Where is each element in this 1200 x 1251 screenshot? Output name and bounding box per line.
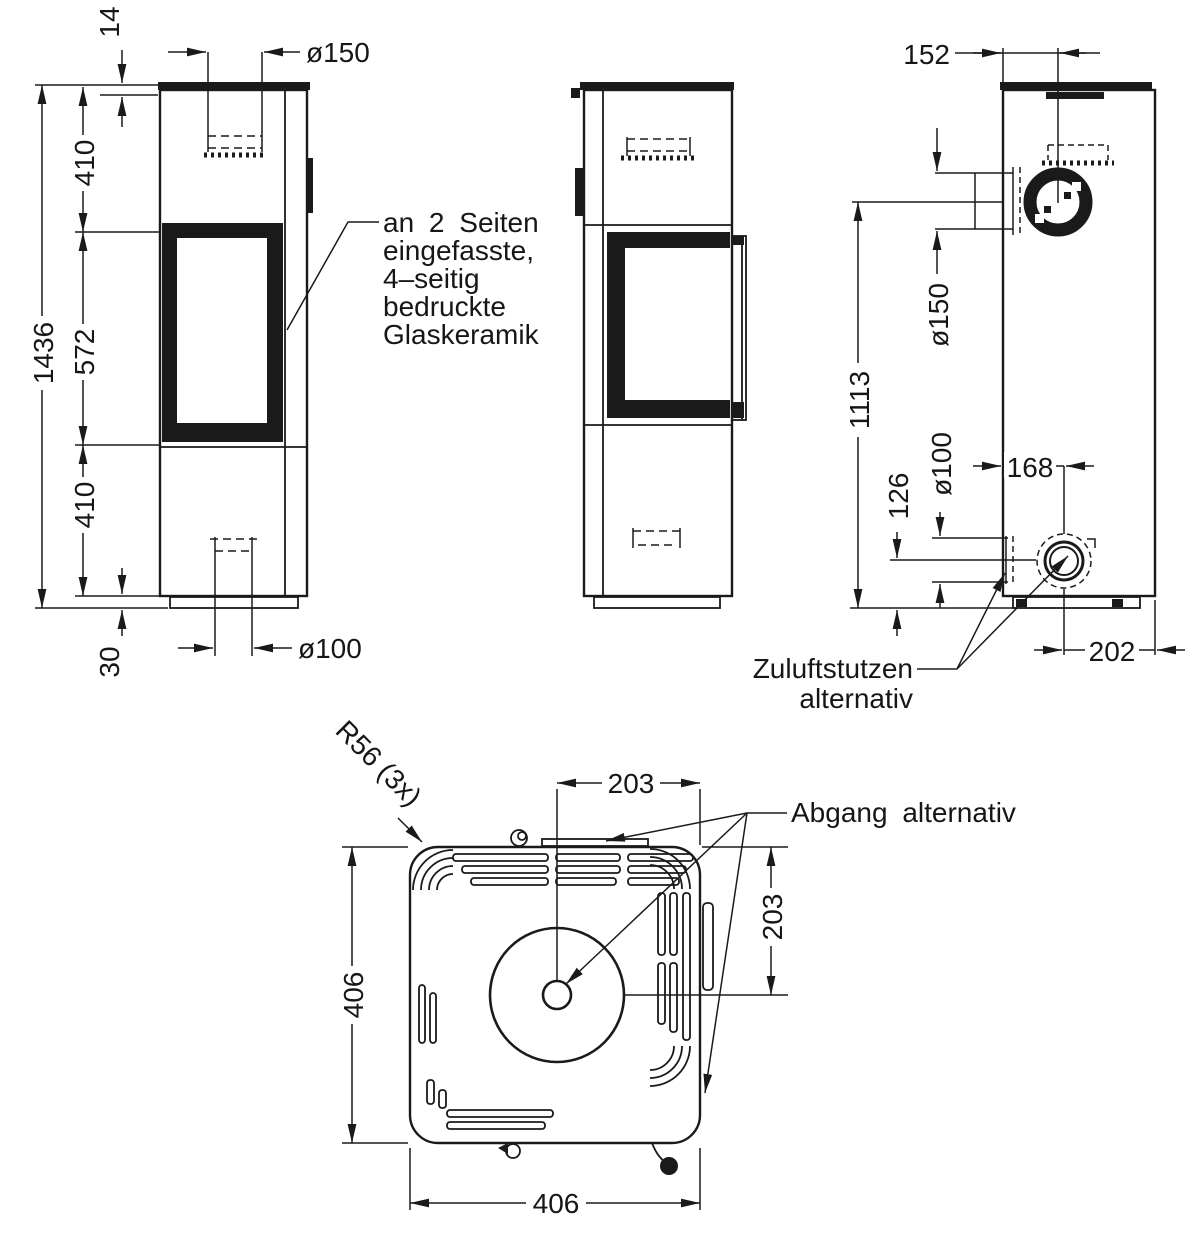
dim-top-plate: 14	[94, 6, 125, 127]
dim-half-depth-right-label: 203	[757, 894, 788, 941]
dim-upper-section: 410	[69, 87, 100, 232]
dim-half-depth-right: 203	[624, 847, 788, 995]
dim-plinth-height-label: 30	[94, 646, 125, 677]
dim-top-plate-label: 14	[94, 6, 125, 37]
outlet-note: Abgang alternativ	[566, 797, 1016, 1093]
air-inlet-note-line1: Zuluftstutzen	[753, 653, 913, 684]
rear-air-socket	[1006, 534, 1095, 588]
glass-note-line5: Glaskeramik	[383, 319, 540, 350]
front-door-lever	[306, 158, 313, 213]
side-glass-door	[607, 232, 730, 418]
side-door-lever	[575, 168, 584, 216]
top-rear-outlet-strip	[542, 839, 648, 846]
dim-air-socket-offset: 168	[973, 452, 1094, 534]
dim-glass-section: 572	[69, 232, 100, 445]
dim-half-width-top-label: 203	[608, 768, 655, 799]
dim-air-socket-offset-label: 168	[1007, 452, 1054, 483]
stove-dimension-drawing: 14 ø150 1436 410	[0, 0, 1200, 1251]
air-inlet-note: Zuluftstutzen alternativ	[753, 556, 1068, 714]
dim-width-bottom-label: 406	[533, 1188, 580, 1219]
glass-note: an 2 Seiten eingefasste, 4–seitig bedruc…	[287, 207, 540, 350]
dim-air-diameter: ø100	[178, 633, 362, 664]
front-flue-collar	[204, 52, 266, 155]
dim-corner-radius: R56 (3x)	[330, 714, 428, 842]
dim-depth-left-label: 406	[338, 972, 369, 1019]
dim-air-diameter-label: ø100	[298, 633, 362, 664]
rear-body	[1003, 90, 1155, 596]
dim-lower-section: 410	[69, 445, 100, 596]
side-glass-panel	[732, 236, 746, 420]
glass-note-line3: 4–seitig	[383, 263, 480, 294]
glass-note-line4: bedruckte	[383, 291, 506, 322]
top-vent-slots	[419, 854, 693, 1129]
side-body	[584, 90, 732, 596]
dim-side-flue-diameter: ø150	[923, 128, 954, 347]
dim-side-flue-height-label: 1113	[844, 371, 875, 429]
air-inlet-note-line2: alternativ	[799, 683, 913, 714]
dim-lower-section-label: 410	[69, 482, 100, 529]
dim-side-flue-diameter-label: ø150	[923, 283, 954, 347]
dim-side-flue-height: 1113	[844, 202, 875, 608]
side-flue-hidden	[621, 137, 697, 158]
dim-depth-left: 406	[338, 847, 408, 1143]
dim-air-socket-offset-right-label: 202	[1089, 636, 1136, 667]
dim-corner-radius-label: R56 (3x)	[330, 714, 428, 812]
front-plinth	[170, 597, 298, 608]
top-handle-knob	[660, 1157, 678, 1175]
top-door-handle	[703, 903, 713, 990]
side-plinth	[594, 597, 720, 608]
dim-air-socket-diameter-label: ø100	[926, 432, 957, 496]
rear-top-flange-hidden	[1042, 145, 1114, 163]
side-lower-hidden-detail	[633, 528, 680, 548]
top-flue-center	[543, 981, 571, 1009]
dim-glass-section-label: 572	[69, 329, 100, 376]
dim-flue-offset-label: 152	[903, 39, 950, 70]
dim-total-height-label: 1436	[28, 322, 59, 384]
dim-width-bottom: 406	[410, 1148, 700, 1219]
glass-note-line2: eingefasste,	[383, 235, 534, 266]
rear-flue-outlet	[1030, 140, 1086, 230]
dim-flue-diameter-label: ø150	[306, 37, 370, 68]
dim-plinth-height: 30	[94, 568, 125, 678]
dim-air-socket-height-label: 126	[883, 473, 914, 520]
dim-air-socket-offset-right: 202	[1034, 589, 1185, 667]
glass-note-line1: an 2 Seiten	[383, 207, 539, 238]
technical-drawing-page: 14 ø150 1436 410	[0, 0, 1200, 1251]
dim-total-height: 1436	[28, 85, 59, 608]
rear-view: ø150 1113 126 ø100	[753, 39, 1185, 714]
side-view	[571, 82, 746, 608]
outlet-note-label: Abgang alternativ	[791, 797, 1016, 828]
dim-air-socket-diameter: ø100	[926, 432, 1008, 608]
front-glass-door	[162, 223, 283, 442]
front-view: 14 ø150 1436 410	[28, 6, 540, 677]
dim-upper-section-label: 410	[69, 140, 100, 187]
rear-side-flue-stub	[935, 167, 1020, 235]
top-view: 203 406 203 406	[330, 714, 1016, 1219]
top-latch	[506, 1144, 520, 1158]
dim-flue-diameter: ø150	[168, 37, 370, 68]
